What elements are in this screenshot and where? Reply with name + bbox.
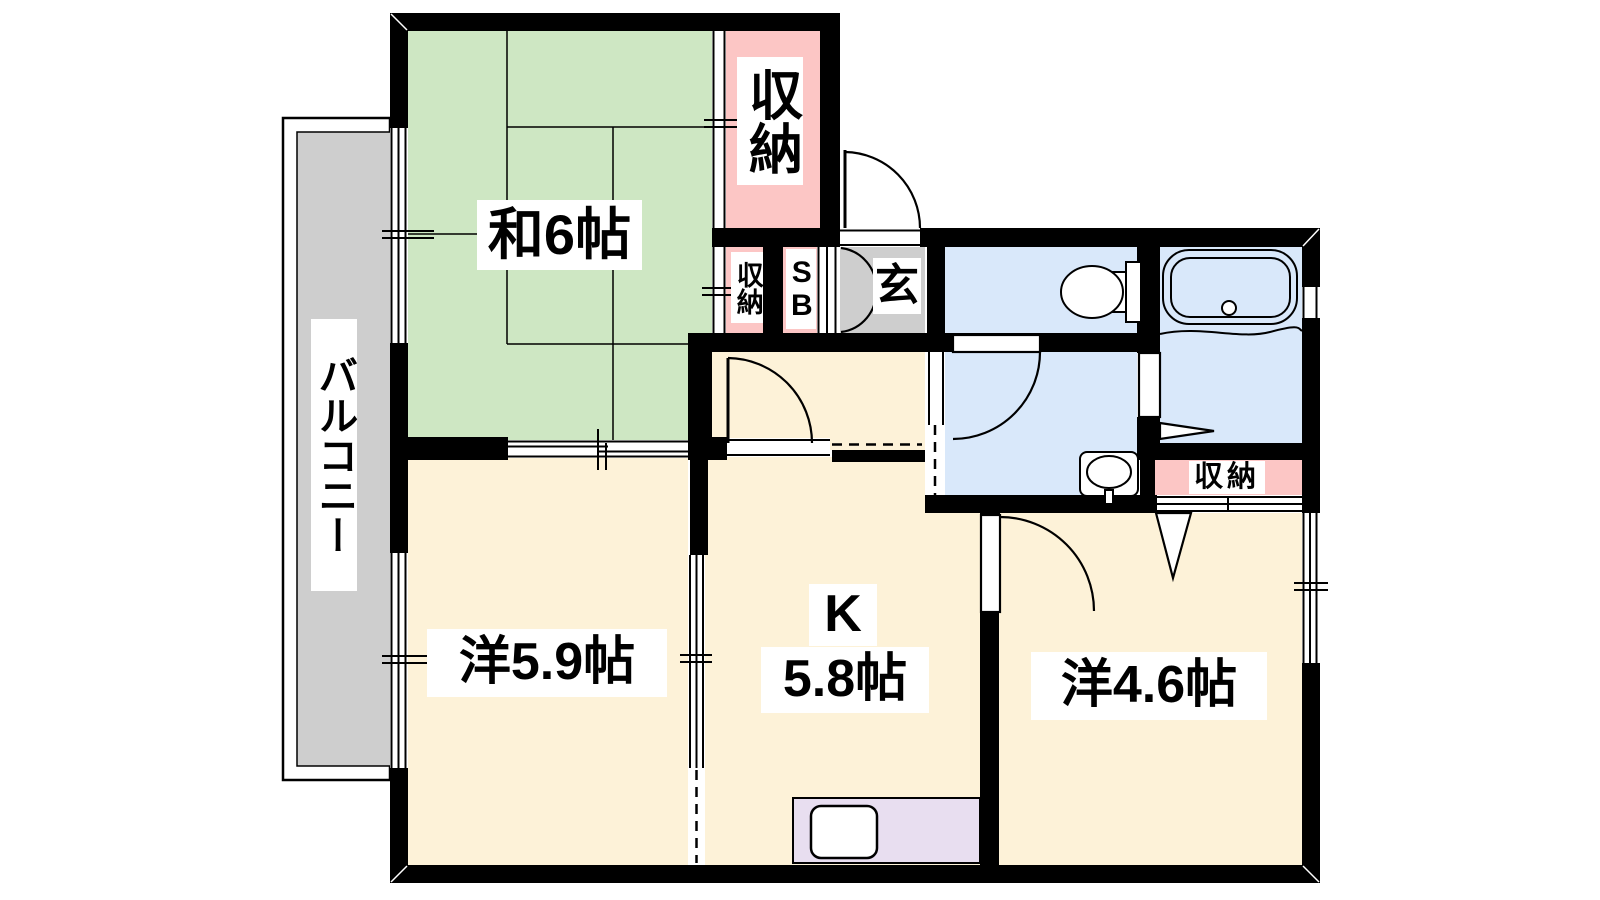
bath-floor	[1160, 247, 1302, 443]
floorplan-stage: 和6帖 収納 収納 SB 玄 バルコニー 洋5.9帖 K 5.8帖 洋4.6帖 …	[0, 0, 1600, 900]
entrance-door	[845, 150, 920, 228]
label-balcony: バルコニー	[311, 319, 357, 591]
shoebox-doors	[817, 245, 840, 333]
label-kitchen-size: 5.8帖	[761, 647, 929, 713]
hall-floor	[712, 350, 925, 450]
window-bath-east	[1302, 287, 1320, 318]
label-western-room-large: 洋5.9帖	[427, 629, 667, 697]
label-japanese-room: 和6帖	[477, 200, 642, 270]
label-kitchen-letter: K	[809, 584, 877, 646]
open-boundary-bottom	[688, 768, 705, 865]
washbasin-icon	[1080, 452, 1138, 504]
corridor-opening	[925, 352, 945, 495]
label-shoe-box: SB	[786, 249, 816, 329]
toilet-icon	[1061, 262, 1141, 322]
label-closet-top: 収納	[737, 57, 803, 185]
label-closet-hall: 収納	[731, 252, 763, 323]
label-entrance: 玄	[873, 258, 921, 314]
kitchen-counter	[793, 798, 980, 863]
label-closet-bedroom: 収納	[1189, 461, 1265, 494]
label-western-room-small: 洋4.6帖	[1031, 652, 1267, 720]
entrance-threshold	[840, 228, 920, 247]
hall-door-threshold	[727, 438, 830, 457]
closet-bedroom-doors	[1155, 495, 1302, 513]
kitchen-sink-icon	[811, 806, 877, 858]
